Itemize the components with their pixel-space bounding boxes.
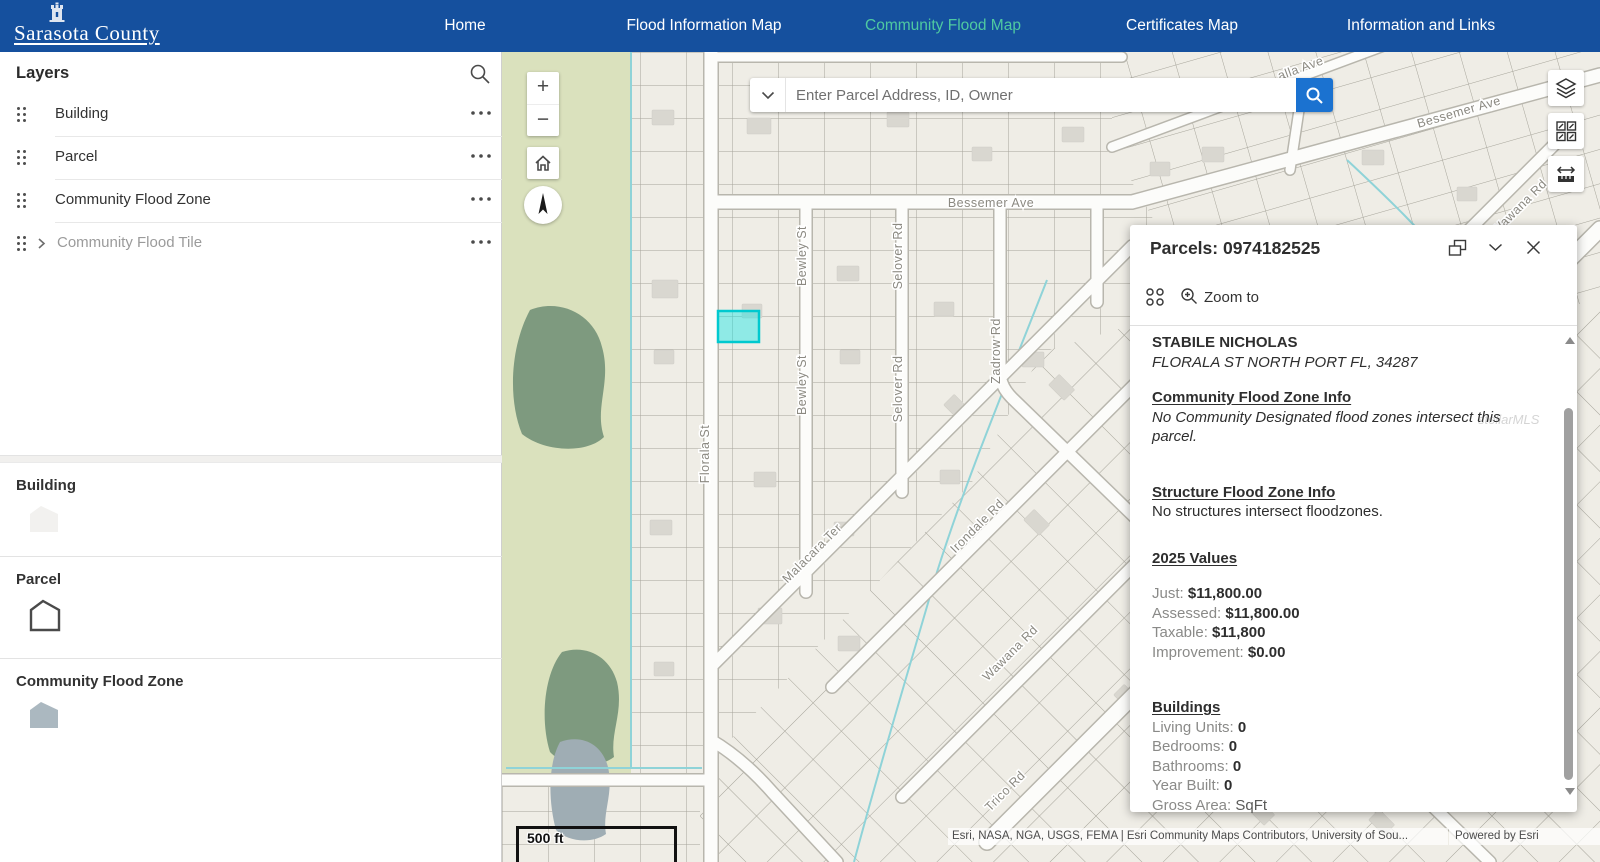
- layer-row-parcel[interactable]: Parcel: [0, 136, 502, 179]
- buildings-heading: Buildings: [1152, 698, 1542, 718]
- popup-content: STABILE NICHOLAS FLORALA ST NORTH PORT F…: [1152, 329, 1542, 815]
- legend-section-building: Building: [0, 463, 502, 556]
- value-row: Taxable: $11,800: [1152, 623, 1542, 643]
- dock-popup-button[interactable]: [1448, 239, 1468, 257]
- legend-title: Community Flood Zone: [16, 673, 183, 690]
- building-swatch-icon: [28, 503, 60, 535]
- street-label: Bewley St: [795, 355, 809, 415]
- measure-button[interactable]: [1548, 156, 1584, 192]
- drag-handle-icon[interactable]: [16, 235, 27, 252]
- value-row: Just: $11,800.00: [1152, 584, 1542, 604]
- zoom-in-button[interactable]: +: [527, 72, 559, 104]
- street-label: Bewley St: [795, 226, 809, 286]
- legend-title: Parcel: [16, 571, 61, 588]
- scale-label: 500 ft: [527, 830, 564, 846]
- value-row: Improvement: $0.00: [1152, 643, 1542, 663]
- county-tower-icon: [44, 2, 70, 22]
- building-row: Bathrooms: 0: [1152, 757, 1542, 777]
- circles-grid-icon: [1145, 287, 1165, 307]
- scale-bar: 500 ft: [516, 826, 677, 862]
- home-icon: [527, 147, 559, 179]
- layer-search-icon[interactable]: [468, 62, 492, 86]
- options-icon[interactable]: [470, 196, 492, 202]
- popup-scrollbar[interactable]: [1564, 408, 1573, 780]
- selected-parcel-highlight[interactable]: [718, 311, 759, 342]
- basemap-gallery-button[interactable]: [1548, 113, 1584, 149]
- close-icon: [1526, 240, 1541, 255]
- building-row: Living Units: 0: [1152, 718, 1542, 738]
- chevron-down-icon: [761, 91, 775, 100]
- collapse-popup-button[interactable]: [1488, 243, 1508, 261]
- zoom-to-button[interactable]: [1180, 287, 1199, 306]
- search-button[interactable]: [1296, 78, 1333, 112]
- drag-handle-icon[interactable]: [16, 149, 27, 166]
- tree-canopy: [513, 306, 605, 449]
- chevron-down-icon: [1488, 243, 1503, 252]
- options-icon[interactable]: [470, 153, 492, 159]
- legend-title: Building: [16, 477, 76, 494]
- structure-flood-body: No structures intersect floodzones.: [1152, 502, 1542, 522]
- street-label: Florala St: [698, 425, 712, 484]
- brand-name[interactable]: Sarasota County: [14, 21, 160, 46]
- parcel-popup: Parcels: 0974182525: [1130, 225, 1577, 812]
- building-row: Bedrooms: 0: [1152, 737, 1542, 757]
- powered-by-esri: Powered by Esri: [1449, 828, 1600, 845]
- basemap-grid-icon: [1554, 119, 1578, 143]
- street-label: Zadrow Rd: [989, 318, 1003, 384]
- compass-needle-icon: [524, 186, 562, 224]
- zoom-to-label[interactable]: Zoom to: [1204, 289, 1259, 306]
- street-label: Selover Rd: [891, 223, 905, 290]
- zoom-controls: + −: [527, 72, 559, 136]
- structure-flood-heading: Structure Flood Zone Info: [1152, 483, 1542, 503]
- zoom-out-button[interactable]: −: [527, 104, 559, 136]
- drag-handle-icon[interactable]: [16, 192, 27, 209]
- zoom-to-magnifier-icon: [1180, 287, 1199, 306]
- search-input[interactable]: [786, 79, 1296, 111]
- layer-label[interactable]: Building: [55, 105, 108, 122]
- building-row: Year Built: 0: [1152, 776, 1542, 796]
- feature-menu-button[interactable]: [1145, 287, 1165, 307]
- options-icon[interactable]: [470, 110, 492, 116]
- popup-scroll-up[interactable]: [1565, 337, 1575, 344]
- values-2025-heading: 2025 Values: [1152, 549, 1542, 569]
- compass-button[interactable]: [524, 186, 562, 224]
- layers-panel: Layers Building Parcel: [0, 52, 502, 862]
- drag-handle-icon[interactable]: [16, 106, 27, 123]
- popup-title: Parcels: 0974182525: [1150, 238, 1320, 259]
- flood-zone-swatch-icon: [28, 699, 60, 731]
- layer-row-building[interactable]: Building: [0, 93, 502, 136]
- legend-section-community-flood-zone: Community Flood Zone: [0, 658, 502, 862]
- dock-icon: [1448, 239, 1467, 257]
- panel-separator: [0, 455, 502, 463]
- expand-chevron-icon[interactable]: [37, 237, 46, 250]
- value-row: Assessed: $11,800.00: [1152, 604, 1542, 624]
- parcel-search-bar: [750, 78, 1333, 112]
- community-flood-body: No Community Designated flood zones inte…: [1152, 408, 1542, 447]
- home-extent-button[interactable]: [527, 147, 559, 179]
- nav-home[interactable]: Home: [444, 17, 485, 35]
- layers-icon: [1554, 76, 1578, 100]
- app: Sarasota County Home Flood Information M…: [0, 0, 1600, 862]
- street-label: Bessemer Ave: [948, 196, 1034, 210]
- parcel-swatch-icon: [28, 597, 62, 633]
- building-row: Gross Area: SqFt: [1152, 796, 1542, 816]
- search-icon: [1305, 86, 1324, 105]
- layer-label[interactable]: Community Flood Tile: [57, 234, 202, 251]
- owner-address: FLORALA ST NORTH PORT FL, 34287: [1152, 353, 1542, 373]
- nav-certificates-map[interactable]: Certificates Map: [1126, 17, 1238, 35]
- options-icon[interactable]: [470, 239, 492, 245]
- popup-scroll-down[interactable]: [1565, 788, 1575, 795]
- layer-label[interactable]: Parcel: [55, 148, 98, 165]
- layer-row-community-flood-zone[interactable]: Community Flood Zone: [0, 179, 502, 222]
- legend-section-parcel: Parcel: [0, 556, 502, 658]
- layer-label[interactable]: Community Flood Zone: [55, 191, 211, 208]
- nav-information-and-links[interactable]: Information and Links: [1347, 17, 1495, 35]
- owner-name: STABILE NICHOLAS: [1152, 333, 1542, 353]
- nav-flood-information-map[interactable]: Flood Information Map: [626, 17, 781, 35]
- close-popup-button[interactable]: [1526, 240, 1546, 258]
- map-attribution: Esri, NASA, NGA, USGS, FEMA | Esri Commu…: [948, 828, 1448, 845]
- nav-community-flood-map[interactable]: Community Flood Map: [865, 17, 1021, 35]
- community-flood-heading: Community Flood Zone Info: [1152, 388, 1542, 408]
- top-nav-bar: Sarasota County Home Flood Information M…: [0, 0, 1600, 52]
- layer-row-community-flood-tile[interactable]: Community Flood Tile: [0, 222, 502, 265]
- layer-list-button[interactable]: [1548, 70, 1584, 106]
- divider: [1130, 325, 1577, 326]
- street-label: Selover Rd: [891, 356, 905, 423]
- measure-icon: [1554, 162, 1578, 186]
- popup-action-bar: Zoom to: [1130, 283, 1577, 323]
- search-source-dropdown[interactable]: [750, 78, 786, 112]
- layers-panel-title: Layers: [16, 64, 69, 83]
